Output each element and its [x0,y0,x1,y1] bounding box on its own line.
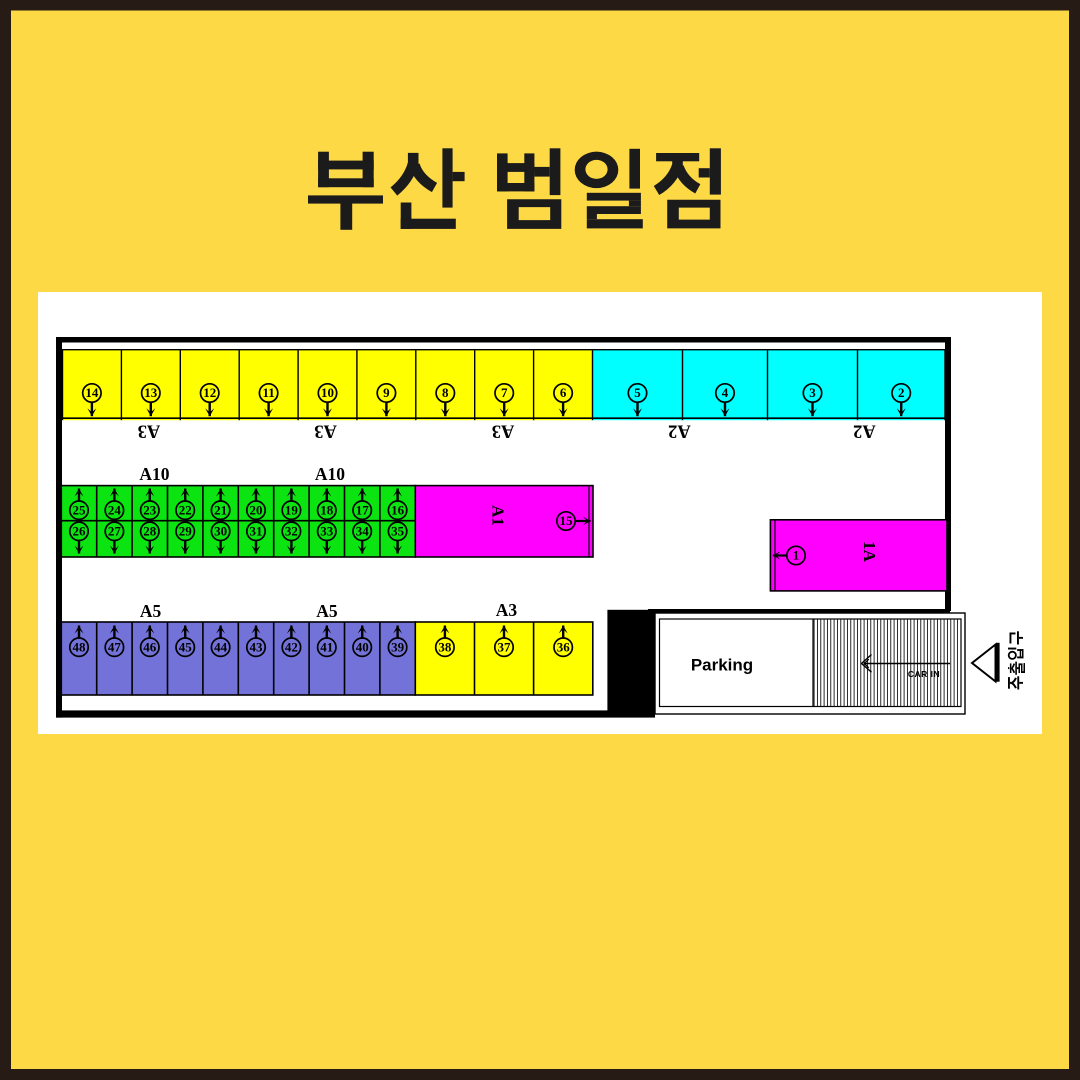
svg-text:15: 15 [560,513,574,528]
svg-text:A3: A3 [314,421,337,441]
svg-text:44: 44 [214,639,228,654]
svg-text:3: 3 [809,385,816,400]
svg-text:A2: A2 [853,421,876,441]
svg-text:23: 23 [143,502,157,517]
svg-text:28: 28 [143,524,157,539]
svg-text:47: 47 [108,639,122,654]
svg-text:25: 25 [73,502,87,517]
svg-text:11: 11 [262,385,274,400]
svg-text:19: 19 [285,502,299,517]
svg-text:CAR IN: CAR IN [908,669,940,679]
svg-text:A5: A5 [316,601,338,621]
svg-text:10: 10 [321,385,334,400]
svg-text:33: 33 [320,524,334,539]
svg-text:20: 20 [250,502,263,517]
svg-text:27: 27 [108,524,122,539]
svg-text:A3: A3 [492,421,515,441]
svg-text:24: 24 [108,502,122,517]
svg-text:31: 31 [250,524,263,539]
svg-text:35: 35 [391,524,405,539]
svg-text:14: 14 [85,385,99,400]
svg-text:5: 5 [634,385,641,400]
svg-text:38: 38 [438,639,452,654]
svg-text:40: 40 [356,639,369,654]
svg-text:1: 1 [793,548,800,563]
svg-text:A10: A10 [315,464,345,484]
svg-text:4: 4 [722,385,729,400]
svg-text:A10: A10 [139,464,169,484]
svg-text:Parking: Parking [691,656,753,675]
svg-text:30: 30 [214,524,227,539]
svg-text:A5: A5 [140,601,162,621]
svg-text:7: 7 [501,385,508,400]
svg-text:1A: 1A [860,541,879,563]
svg-text:36: 36 [557,639,571,654]
svg-text:29: 29 [179,524,193,539]
svg-text:17: 17 [356,502,370,517]
svg-text:37: 37 [498,639,512,654]
svg-text:6: 6 [560,385,567,400]
svg-text:2: 2 [898,385,905,400]
svg-text:16: 16 [391,502,405,517]
svg-text:A1: A1 [489,505,508,526]
svg-text:43: 43 [250,639,264,654]
svg-text:34: 34 [356,524,370,539]
svg-text:48: 48 [73,639,87,654]
svg-text:A3: A3 [138,421,161,441]
svg-text:41: 41 [320,639,333,654]
svg-text:42: 42 [285,639,298,654]
svg-text:8: 8 [442,385,449,400]
svg-text:12: 12 [203,385,216,400]
svg-text:18: 18 [320,502,334,517]
svg-text:A3: A3 [496,600,518,620]
svg-text:9: 9 [383,385,390,400]
svg-text:39: 39 [391,639,405,654]
svg-text:21: 21 [214,502,227,517]
svg-text:13: 13 [144,385,158,400]
svg-text:32: 32 [285,524,298,539]
svg-text:46: 46 [143,639,157,654]
svg-text:45: 45 [179,639,193,654]
svg-text:22: 22 [179,502,192,517]
svg-text:A2: A2 [668,421,691,441]
svg-text:26: 26 [73,524,87,539]
